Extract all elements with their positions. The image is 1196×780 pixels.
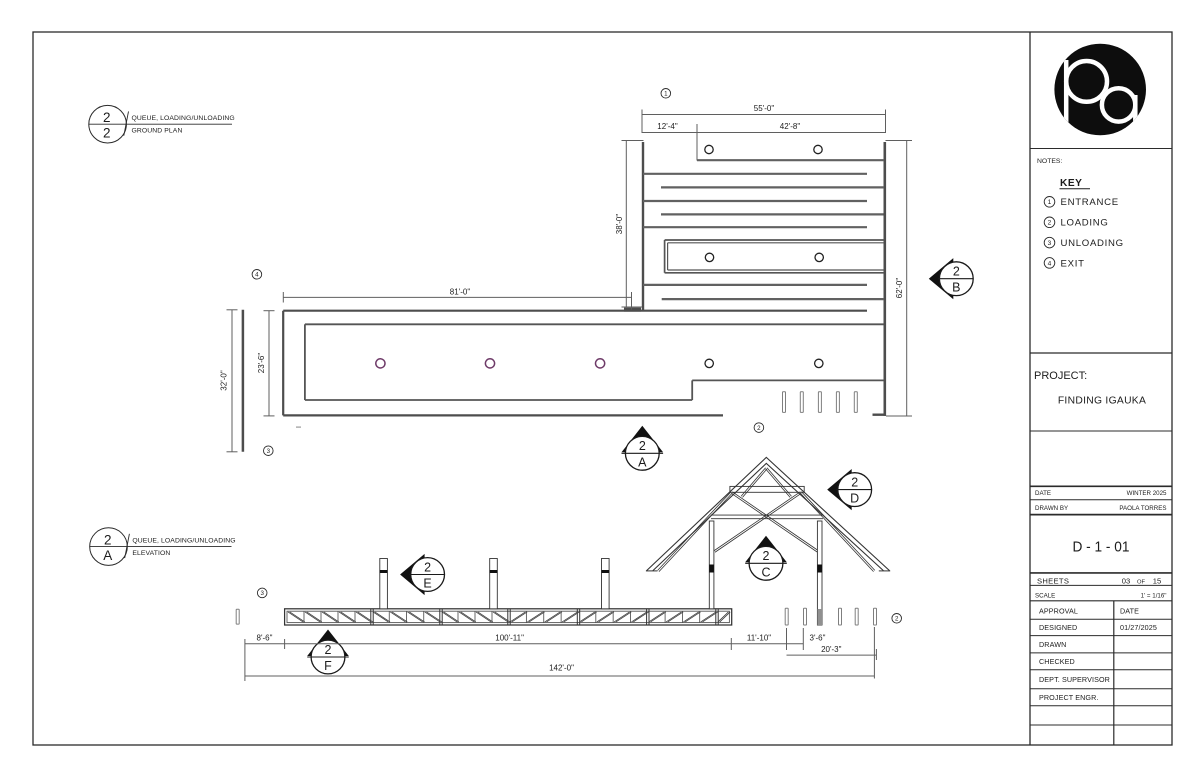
svg-text:LOADING: LOADING [1061,218,1109,229]
svg-text:142'-0": 142'-0" [549,664,574,673]
svg-text:D - 1 - 01: D - 1 - 01 [1073,539,1130,556]
svg-text:FINDING IGAUKA: FINDING IGAUKA [1058,396,1146,407]
svg-text:3: 3 [260,590,264,597]
svg-text:A: A [103,548,112,563]
svg-text:NOTES:: NOTES: [1037,158,1062,165]
svg-text:ENTRANCE: ENTRANCE [1061,197,1119,208]
svg-text:2: 2 [325,643,332,657]
svg-text:1: 1 [664,91,668,98]
svg-text:2: 2 [895,616,899,623]
svg-text:PAOLA TORRES: PAOLA TORRES [1119,505,1166,512]
svg-text:2: 2 [104,533,112,548]
svg-text:KEY: KEY [1060,178,1082,189]
svg-text:ELEVATION: ELEVATION [132,550,170,557]
svg-text:03: 03 [1122,576,1130,585]
svg-text:WINTER 2025: WINTER 2025 [1127,490,1167,497]
svg-text:DATE: DATE [1120,607,1139,616]
svg-text:15: 15 [1153,576,1161,585]
svg-text:F: F [324,659,332,673]
svg-text:2: 2 [103,110,111,125]
svg-text:2: 2 [763,549,770,563]
svg-text:2: 2 [851,475,858,489]
svg-text:UNLOADING: UNLOADING [1061,238,1124,249]
svg-text:32'-0": 32'-0" [219,370,228,391]
svg-text:62'-0": 62'-0" [895,278,904,299]
svg-text:42'-8": 42'-8" [780,122,801,131]
svg-text:4: 4 [1048,260,1052,267]
svg-text:20'-3": 20'-3" [821,645,842,654]
svg-text:81'-0": 81'-0" [450,287,471,296]
svg-text:100'-11": 100'-11" [495,634,524,643]
svg-text:DATE: DATE [1035,490,1051,497]
svg-text:E: E [423,577,431,591]
svg-text:1: 1 [1048,199,1052,206]
svg-text:SCALE: SCALE [1035,592,1055,599]
svg-text:2: 2 [1048,220,1052,227]
svg-text:QUEUE, LOADING/UNLOADING: QUEUE, LOADING/UNLOADING [132,537,235,544]
svg-text:A: A [638,455,647,469]
svg-text:2: 2 [953,265,960,279]
svg-text:11'-10": 11'-10" [747,634,771,643]
svg-text:B: B [952,281,960,295]
svg-text:EXIT: EXIT [1061,258,1085,269]
svg-text:SHEETS: SHEETS [1037,576,1069,585]
svg-text:PROJECT ENGR.: PROJECT ENGR. [1039,693,1098,702]
svg-text:C: C [761,565,770,579]
svg-text:D: D [850,492,859,506]
svg-text:DESIGNED: DESIGNED [1039,623,1077,632]
svg-text:APPROVAL: APPROVAL [1039,607,1078,616]
svg-text:CHECKED: CHECKED [1039,657,1075,666]
svg-text:3'-6": 3'-6" [810,634,826,643]
svg-text:23'-6": 23'-6" [257,353,266,374]
svg-text:2: 2 [424,560,431,574]
svg-text:01/27/2025: 01/27/2025 [1120,623,1157,632]
svg-text:1' = 1/16": 1' = 1/16" [1141,592,1167,599]
svg-text:PROJECT:: PROJECT: [1034,370,1087,382]
svg-text:2: 2 [757,425,761,432]
svg-text:2: 2 [103,126,111,141]
svg-text:DRAWN BY: DRAWN BY [1035,505,1068,512]
svg-text:8'-6": 8'-6" [257,634,273,643]
svg-text:12'-4": 12'-4" [657,122,678,131]
svg-text:2: 2 [639,439,646,453]
svg-text:GROUND PLAN: GROUND PLAN [132,127,183,134]
svg-text:38'-0": 38'-0" [615,214,624,235]
svg-text:QUEUE, LOADING/UNLOADING: QUEUE, LOADING/UNLOADING [132,115,235,122]
svg-text:OF: OF [1137,579,1146,585]
svg-text:3: 3 [1048,240,1052,247]
svg-text:DEPT. SUPERVISOR: DEPT. SUPERVISOR [1039,675,1110,684]
svg-text:DRAWN: DRAWN [1039,640,1066,649]
svg-text:3: 3 [267,448,271,455]
svg-text:4: 4 [255,272,259,279]
svg-text:55'-0": 55'-0" [754,104,775,113]
